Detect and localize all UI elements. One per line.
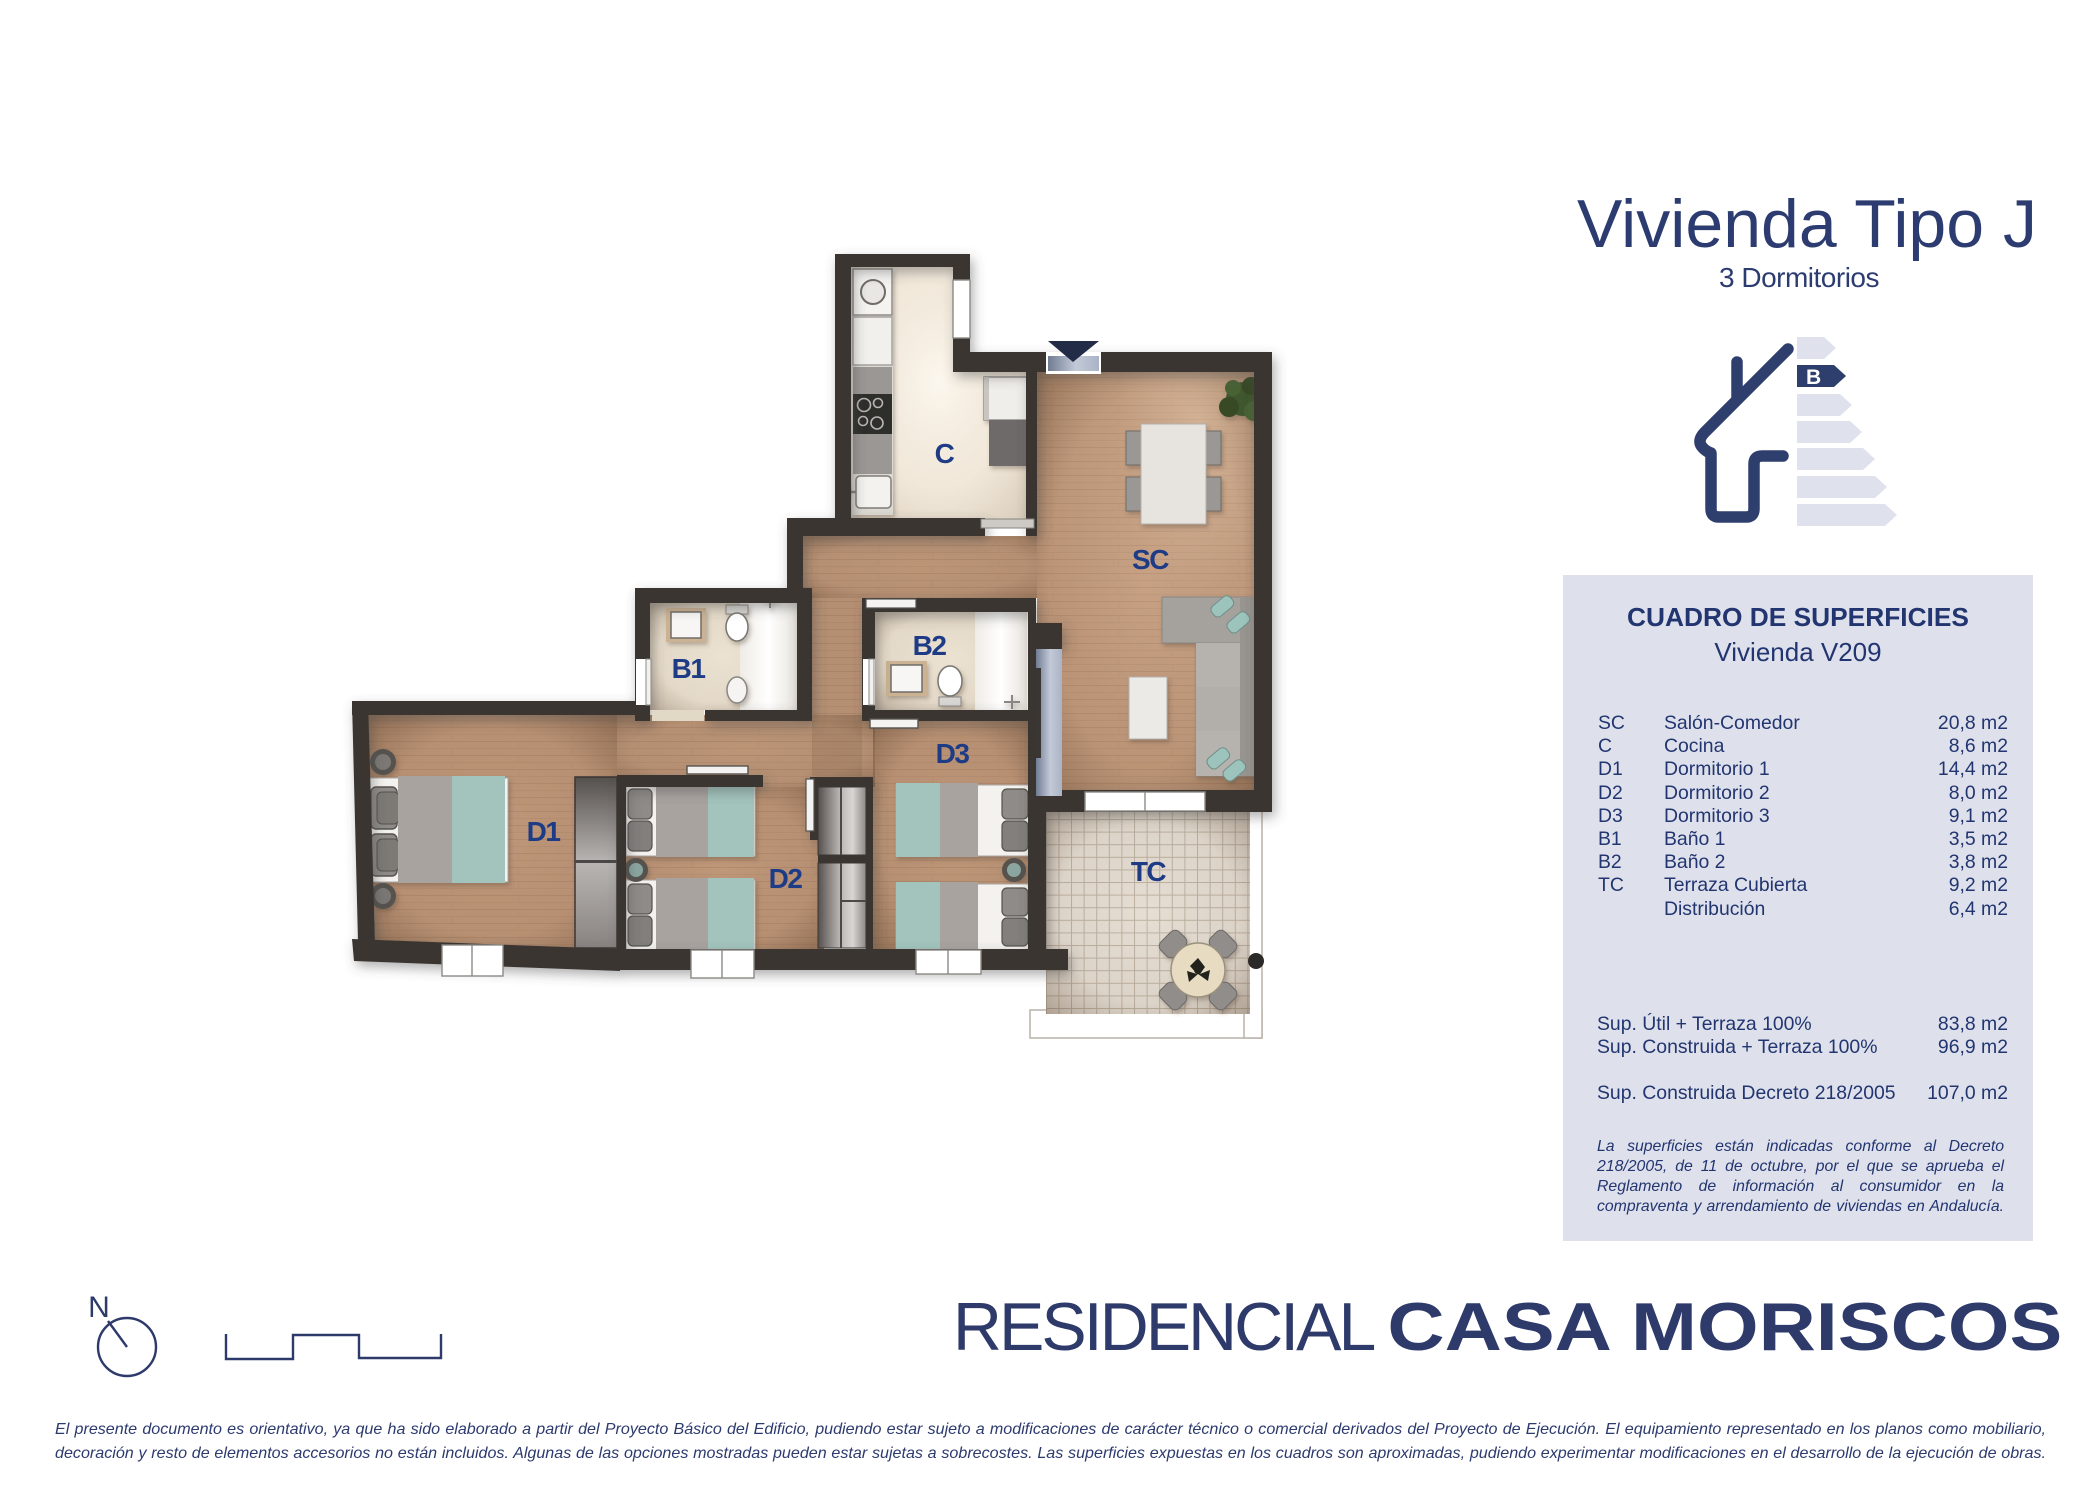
svg-text:B: B <box>1806 366 1821 389</box>
svg-text:TC: TC <box>1131 856 1167 887</box>
svg-text:B2: B2 <box>913 630 947 661</box>
svg-text:D1: D1 <box>527 816 561 847</box>
svg-text:C: C <box>935 438 955 469</box>
svg-text:D2: D2 <box>769 863 803 894</box>
svg-text:SC: SC <box>1132 544 1169 575</box>
svg-text:D3: D3 <box>936 738 970 769</box>
svg-text:N: N <box>88 1291 110 1324</box>
svg-text:B1: B1 <box>672 653 706 684</box>
